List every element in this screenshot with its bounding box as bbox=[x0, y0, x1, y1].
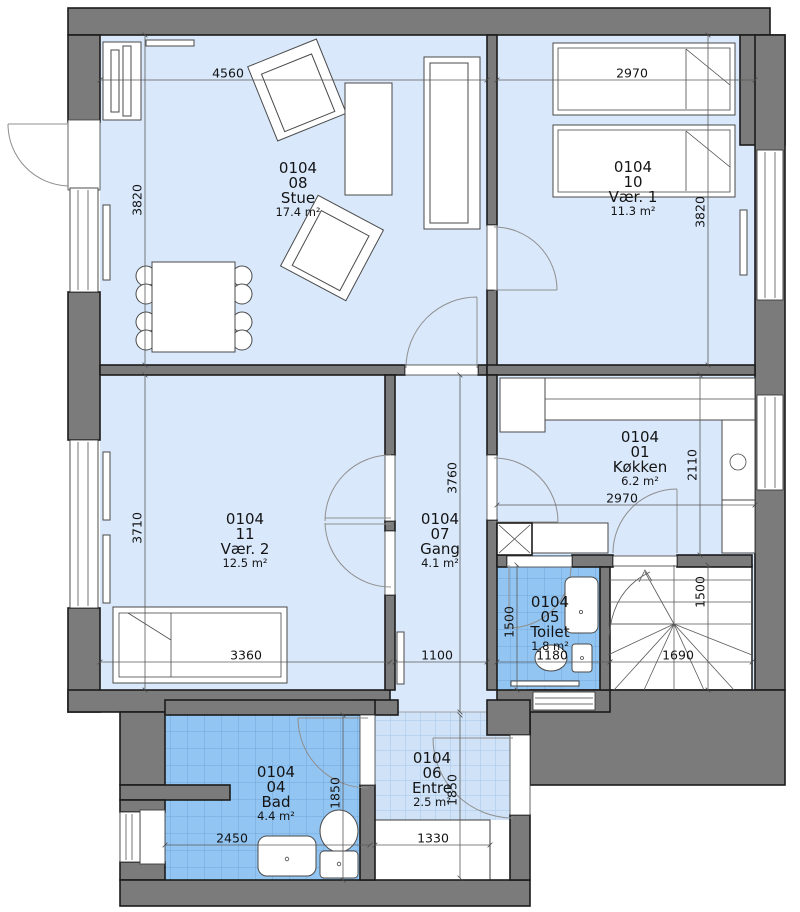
sink bbox=[565, 577, 598, 633]
dim-stairs-height: 1500 bbox=[693, 576, 708, 608]
window-toilet-bottom bbox=[533, 692, 595, 710]
dim-gang-height: 3760 bbox=[445, 462, 460, 494]
room-area: 4.1 m² bbox=[420, 557, 460, 570]
room-area: 17.4 m² bbox=[275, 206, 320, 219]
dim-vaer2-width: 3360 bbox=[230, 648, 262, 663]
dim-entre-height: 1850 bbox=[445, 774, 460, 806]
coffee-table bbox=[345, 83, 392, 195]
room-label-vaer2: 0104 11 Vær. 2 12.5 m² bbox=[221, 512, 270, 570]
dim-vaer1-width: 2970 bbox=[616, 66, 648, 81]
dim-vaer1-height: 3820 bbox=[693, 196, 708, 228]
window-stue-left bbox=[70, 188, 98, 292]
sink bbox=[258, 836, 316, 876]
room-name: Vær. 2 bbox=[221, 542, 270, 557]
shaft bbox=[497, 523, 532, 555]
radiator-gang bbox=[397, 632, 404, 684]
radiator-vaer1 bbox=[740, 210, 747, 275]
room-label-stue: 0104 08 Stue 17.4 m² bbox=[275, 161, 320, 219]
room-name: Toilet bbox=[530, 625, 569, 640]
dim-bad-width: 2450 bbox=[216, 831, 248, 846]
radiator-vaer2-b bbox=[103, 535, 110, 603]
room-name: Vær. 1 bbox=[609, 190, 658, 205]
room-label-vaer1: 0104 10 Vær. 1 11.3 m² bbox=[609, 160, 658, 218]
dim-entrance-step-width: 1330 bbox=[417, 831, 449, 846]
shelf bbox=[511, 681, 579, 686]
room-area: 4.4 m² bbox=[257, 810, 295, 823]
room-name: Stue bbox=[275, 191, 320, 206]
room-label-gang: 0104 07 Gang 4.1 m² bbox=[420, 512, 460, 570]
floor-plan-drawing bbox=[0, 0, 800, 912]
window-koekken-right bbox=[757, 395, 783, 490]
toilet-fixture bbox=[320, 810, 358, 878]
radiator-stue bbox=[103, 205, 110, 280]
room-label-bad: 0104 04 Bad 4.4 m² bbox=[257, 765, 295, 823]
dim-stue-width: 4560 bbox=[212, 66, 244, 81]
balcony-door bbox=[8, 124, 68, 186]
entrance-step bbox=[375, 820, 490, 880]
dim-koekken-height: 2110 bbox=[685, 449, 700, 481]
room-name: Gang bbox=[420, 542, 460, 557]
room-name: Køkken bbox=[613, 460, 668, 475]
sofa bbox=[424, 57, 480, 229]
dim-toilet-width: 1180 bbox=[536, 648, 568, 663]
dim-bad-height: 1850 bbox=[328, 777, 343, 809]
dim-toilet-height: 1500 bbox=[502, 606, 517, 638]
dim-stairs-width: 1690 bbox=[662, 648, 694, 663]
radiator-vaer2-a bbox=[103, 452, 110, 520]
dim-gang-width: 1100 bbox=[421, 648, 453, 663]
dining-table bbox=[136, 262, 252, 352]
window-vaer1-right bbox=[757, 150, 783, 300]
room-area: 6.2 m² bbox=[613, 475, 668, 488]
stairs-floor bbox=[608, 565, 752, 690]
room-name: Bad bbox=[257, 795, 295, 810]
room-area: 11.3 m² bbox=[609, 205, 658, 218]
vaer2-bed bbox=[113, 607, 287, 683]
dim-vaer2-height: 3710 bbox=[130, 512, 145, 544]
room-area: 12.5 m² bbox=[221, 557, 270, 570]
room-label-toilet: 0104 05 Toilet 1.8 m² bbox=[530, 595, 569, 653]
window-vaer2-left bbox=[70, 440, 98, 608]
dim-koekken-width: 2970 bbox=[606, 491, 638, 506]
dim-stue-height: 3820 bbox=[130, 184, 145, 216]
floor-plan: 0104 08 Stue 17.4 m² 0104 10 Vær. 1 11.3… bbox=[0, 0, 800, 912]
room-label-koekken: 0104 01 Køkken 6.2 m² bbox=[613, 430, 668, 488]
window-bad-left bbox=[120, 810, 165, 864]
